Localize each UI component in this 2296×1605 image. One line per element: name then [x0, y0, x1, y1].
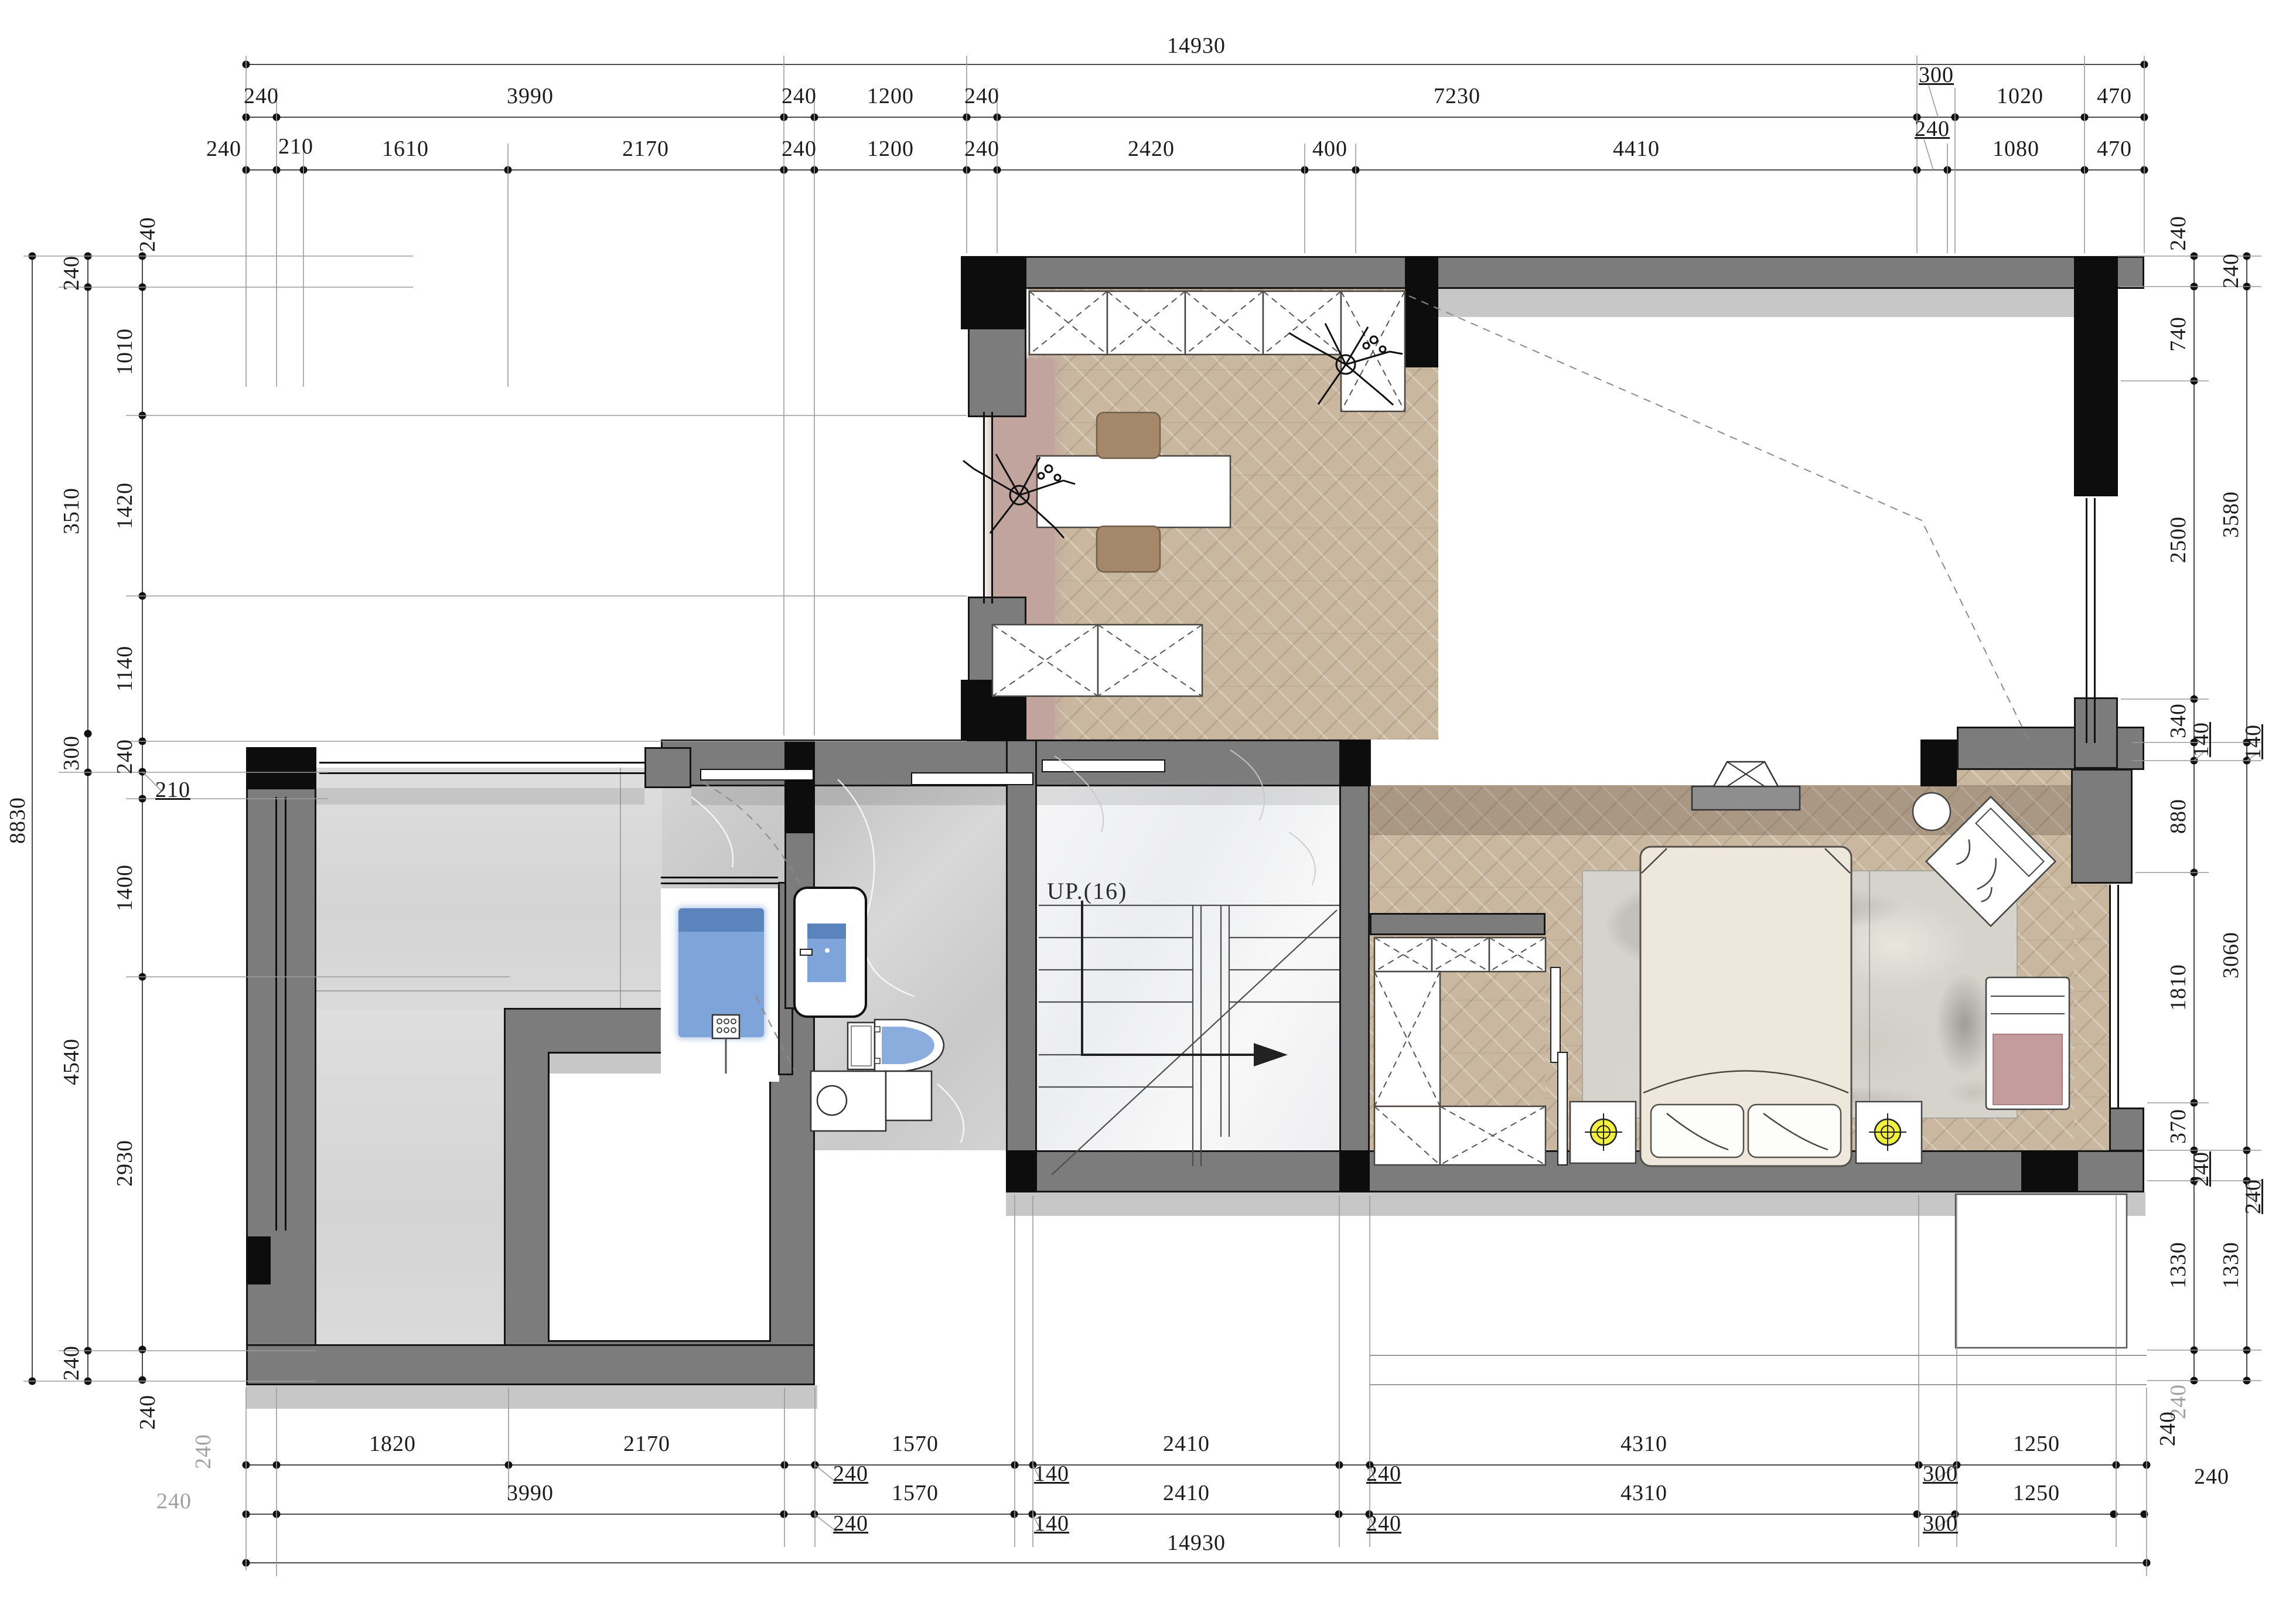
dimension-label: 240: [137, 1395, 159, 1430]
dimension-label: 4310: [1620, 1433, 1667, 1455]
dimension-label: 240: [964, 85, 999, 107]
dimension-label: 1570: [892, 1433, 939, 1455]
dimension-label: 140: [2242, 724, 2264, 759]
dimension-label: 1810: [2167, 964, 2189, 1011]
dimension-label: 240: [2242, 1179, 2264, 1214]
dimension-label: 2410: [1163, 1433, 1210, 1455]
dimension-label: 240: [206, 138, 241, 160]
dimension-label: 7230: [1434, 85, 1480, 107]
dimension-label: 140: [1034, 1512, 1069, 1535]
dimension-label: 470: [2097, 85, 2132, 107]
dimension-label: 240: [782, 138, 817, 160]
dimension-label: 240: [2194, 1466, 2229, 1488]
dimension-label: 3510: [60, 488, 83, 534]
dimension-label: 240: [244, 85, 279, 107]
dimension-label: 8830: [6, 797, 29, 844]
dimension-label: 140: [1034, 1463, 1069, 1485]
dimension-label: 1080: [1993, 138, 2039, 160]
dimension-label: 1820: [369, 1433, 416, 1455]
dimension-label: 240: [137, 217, 159, 252]
dimension-label: 1010: [114, 328, 136, 375]
dimension-label: 240: [833, 1512, 868, 1535]
dimension-label: 2410: [1163, 1482, 1210, 1504]
dimension-labels-layer: 1493024039902401200240723030010204702402…: [0, 0, 2296, 1605]
dimension-label: 1140: [114, 646, 136, 692]
dimension-label: 1330: [2167, 1242, 2189, 1289]
dimension-label: 240: [114, 739, 136, 774]
dimension-label: 740: [2167, 316, 2189, 352]
dimension-label: 14930: [1167, 35, 1226, 57]
dimension-label: 1200: [867, 138, 914, 160]
dimension-label: 880: [2167, 799, 2189, 834]
dimension-label: 1250: [2013, 1433, 2060, 1455]
dimension-label: 3990: [507, 1482, 554, 1504]
dimension-label: 1400: [114, 864, 136, 911]
dimension-label: 2500: [2167, 516, 2189, 563]
dimension-label: 300: [60, 735, 83, 771]
dimension-label: 240: [2220, 253, 2242, 288]
dimension-label: 1570: [892, 1482, 939, 1504]
dimension-label: 240: [964, 138, 999, 160]
dimension-label: 140: [2190, 722, 2212, 757]
dimension-label: 2170: [623, 1433, 670, 1455]
dimension-label: 370: [2167, 1109, 2189, 1144]
dimension-label: 4540: [60, 1038, 83, 1085]
dimension-label: 300: [1923, 1463, 1958, 1485]
dimension-label: 240: [60, 1345, 83, 1381]
dimension-label: 240: [156, 1490, 192, 1512]
dimension-label: 240: [2157, 1411, 2179, 1446]
dimension-label: 300: [1923, 1512, 1958, 1535]
dimension-label: 300: [1919, 64, 1954, 86]
dimension-label: 1330: [2220, 1242, 2242, 1289]
dimension-label: 1420: [114, 482, 136, 529]
dimension-label: 240: [1366, 1463, 1401, 1485]
dimension-label: 3990: [507, 85, 554, 107]
dimension-label: 2930: [114, 1140, 136, 1187]
dimension-label: 1610: [382, 138, 429, 160]
dimension-label: 14930: [1167, 1532, 1226, 1554]
floor-plan-canvas: UP.(16) 14930240399024012002407230300102…: [0, 0, 2296, 1605]
dimension-label: 210: [155, 779, 190, 801]
dimension-label: 3060: [2220, 932, 2242, 979]
dimension-label: 240: [1915, 118, 1950, 140]
dimension-label: 240: [782, 85, 817, 107]
dimension-label: 240: [2167, 216, 2189, 251]
dimension-label: 2420: [1128, 138, 1175, 160]
dimension-label: 240: [833, 1463, 868, 1485]
dimension-label: 240: [60, 255, 83, 291]
dimension-label: 470: [2097, 138, 2132, 160]
dimension-label: 240: [1366, 1512, 1401, 1535]
dimension-label: 240: [2190, 1151, 2212, 1187]
dimension-label: 340: [2167, 703, 2189, 738]
dimension-label: 400: [1312, 138, 1347, 160]
dimension-label: 240: [192, 1434, 214, 1469]
dimension-label: 2170: [622, 138, 669, 160]
dimension-label: 4410: [1613, 138, 1660, 160]
dimension-label: 1200: [867, 85, 914, 107]
dimension-label: 210: [278, 135, 313, 158]
dimension-label: 1250: [2013, 1482, 2060, 1504]
dimension-label: 1020: [1997, 85, 2043, 107]
dimension-label: 3580: [2220, 491, 2242, 538]
dimension-label: 4310: [1620, 1482, 1667, 1504]
